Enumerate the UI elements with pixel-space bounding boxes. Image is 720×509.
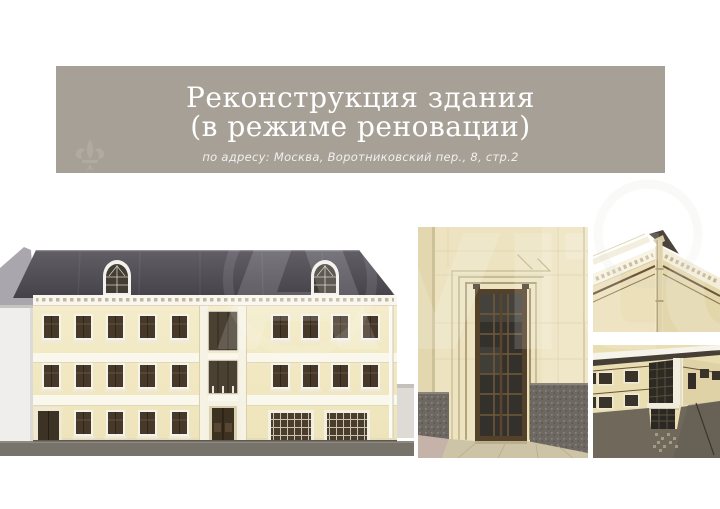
entrance-portal-render — [418, 227, 588, 458]
slide-page: Реконструкция здания (в режиме реновации… — [0, 0, 720, 509]
courtyard-view-render — [593, 345, 720, 458]
slide-title: Реконструкция здания (в режиме реновации… — [56, 83, 665, 141]
slide-title-line2: (в режиме реновации) — [56, 112, 665, 141]
title-banner: Реконструкция здания (в режиме реновации… — [56, 66, 665, 173]
cornice-corner-render — [593, 228, 720, 332]
main-elevation-render — [0, 227, 414, 458]
slide-subtitle: по адресу: Москва, Воротниковский пер., … — [56, 150, 665, 164]
fleur-de-lis-icon — [72, 138, 108, 172]
slide-title-line1: Реконструкция здания — [56, 83, 665, 112]
